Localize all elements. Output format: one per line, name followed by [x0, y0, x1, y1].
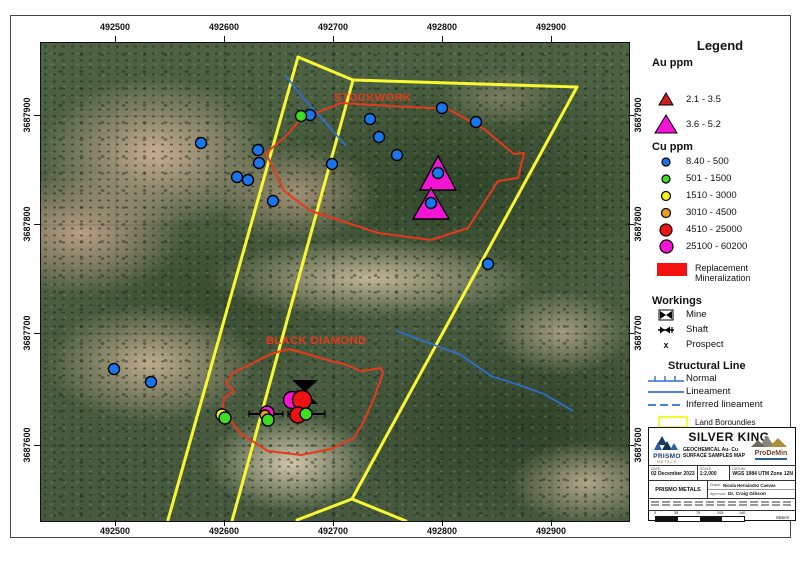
- cu-class-label: 4510 - 25000: [686, 224, 742, 235]
- cu-sample-point: [374, 132, 385, 143]
- structural-title: Structural Line: [668, 360, 794, 372]
- land-boundary-line: [297, 499, 352, 520]
- cu-sample-point: [254, 158, 265, 169]
- legend-panel: Legend Au ppm 2.1 - 3.5 3.6 - 5.2 Cu ppm…: [646, 36, 794, 430]
- scalebar-label: 140: [739, 511, 745, 515]
- cu-dot-icon: [646, 222, 686, 238]
- legend-item-mine: Mine: [646, 307, 794, 322]
- cu-sample-point: [243, 175, 254, 186]
- approved-value: Dr. Craig Gibson: [728, 492, 766, 497]
- cu-sample-point: [296, 111, 307, 122]
- replacement-label-1: Replacement: [695, 263, 748, 273]
- workings-label: Prospect: [686, 339, 724, 350]
- scalebar-label: 35: [674, 511, 678, 515]
- legend-item-cu-5: 4510 - 25000: [646, 221, 794, 238]
- cu-dot-icon: [646, 189, 686, 203]
- scalebar-segments: [655, 516, 745, 522]
- cu-sample-point: [253, 145, 264, 156]
- land-boundary-label: Land Boroundies: [695, 418, 756, 427]
- structural-label: Lineament: [686, 386, 730, 397]
- scalebar-label: 70: [696, 511, 700, 515]
- cu-sample-point: [392, 150, 403, 161]
- scalebar-label: 105: [717, 511, 723, 515]
- fine-print: [649, 499, 795, 511]
- legend-item-au-1: 2.1 - 3.5: [646, 87, 794, 111]
- cu-sample-point: [437, 103, 448, 114]
- title-block: PRISMO METALS SILVER KING GEOCHEMICAL Au…: [648, 427, 796, 521]
- prismo-logo-subtext: METALS: [651, 460, 683, 464]
- au-section-title: Au ppm: [652, 57, 794, 69]
- scalebar-units: Meters: [776, 515, 789, 520]
- zone-label: STOCKWORK: [334, 92, 412, 104]
- inferred-lineament-line-icon: [646, 401, 686, 409]
- legend-item-shaft: Shaft: [646, 322, 794, 337]
- drawn-label: Drawn:: [710, 483, 721, 487]
- cu-class-label: 501 - 1500: [686, 173, 731, 184]
- legend-item-au-2: 3.6 - 5.2: [646, 111, 794, 137]
- prismo-logo-text: PRISMO: [651, 453, 683, 460]
- cu-sample-point: [365, 114, 376, 125]
- au-class-label: 3.6 - 5.2: [686, 119, 721, 130]
- legend-item-prospect: x Prospect: [646, 337, 794, 352]
- cu-dot-icon: [646, 155, 686, 169]
- workings-label: Shaft: [686, 324, 708, 335]
- shaft-icon: [646, 325, 686, 335]
- cu-sample-point: [219, 412, 231, 424]
- au-triangle-large-icon: [646, 114, 686, 134]
- scale-bar: 0 35 70 105 140 Meters: [649, 511, 795, 522]
- land-boundary-line: [352, 499, 406, 521]
- map-overlay-svg: STOCKWORKBLACK DIAMOND: [41, 43, 629, 521]
- prodemin-logo-text: ProDeMin: [755, 450, 788, 460]
- map-canvas: STOCKWORKBLACK DIAMOND N: [40, 42, 630, 522]
- cu-sample-point: [471, 117, 482, 128]
- cu-sample-point: [109, 364, 120, 375]
- legend-item-cu-2: 501 - 1500: [646, 170, 794, 187]
- cu-dot-icon: [646, 238, 686, 255]
- replacement-label-2: Mineralization: [695, 273, 751, 283]
- prospect-x-icon: x: [646, 340, 686, 350]
- cu-sample-point: [196, 138, 207, 149]
- cu-dot-icon: [646, 206, 686, 220]
- mineralized-zone-outline: [266, 103, 524, 240]
- structural-label: Normal: [686, 373, 717, 384]
- prodemin-logo: ProDeMin: [749, 434, 793, 460]
- legend-title: Legend: [646, 38, 794, 53]
- normal-fault-line-icon: [646, 374, 686, 384]
- map-sheet: { "map": { "north_label": "N", "x_ticks"…: [0, 0, 800, 566]
- lineament-line-icon: [646, 388, 686, 396]
- cu-sample-point: [426, 198, 437, 209]
- land-boundary-line: [168, 57, 298, 520]
- cu-class-label: 1510 - 3000: [686, 190, 737, 201]
- zone-label: BLACK DIAMOND: [266, 335, 367, 347]
- legend-item-normal: Normal: [646, 372, 794, 385]
- date-value: 02 December 2023: [651, 471, 695, 477]
- structural-label: Inferred lineament: [686, 399, 763, 410]
- scalebar-label: 0: [654, 511, 656, 515]
- replacement-swatch: [657, 263, 687, 276]
- cu-class-label: 3010 - 4500: [686, 207, 737, 218]
- cu-sample-point: [300, 408, 312, 420]
- land-boundary-line: [352, 87, 577, 499]
- legend-item-replacement: Replacement Mineralization: [646, 263, 794, 289]
- cu-sample-point: [268, 196, 279, 207]
- cu-sample-point: [293, 391, 312, 410]
- cu-class-label: 25100 - 60200: [686, 241, 747, 252]
- lineament-line: [286, 76, 346, 146]
- legend-item-cu-6: 25100 - 60200: [646, 238, 794, 255]
- cu-sample-point: [146, 377, 157, 388]
- scale-value: 1:2,000: [700, 471, 728, 477]
- drawn-value: Nicola Hernández Cuevas: [723, 483, 776, 488]
- legend-item-cu-4: 3010 - 4500: [646, 204, 794, 221]
- legend-item-inferred: Inferred lineament: [646, 398, 794, 411]
- workings-title: Workings: [652, 295, 794, 307]
- cu-sample-point: [327, 159, 338, 170]
- land-boundary-line: [353, 80, 577, 87]
- legend-item-cu-3: 1510 - 3000: [646, 187, 794, 204]
- cu-dot-icon: [646, 172, 686, 186]
- cu-sample-point: [262, 414, 274, 426]
- prismo-logo-icon: [654, 435, 680, 451]
- mine-icon: [646, 309, 686, 321]
- company-name: PRISMO METALS: [649, 481, 708, 498]
- au-class-label: 2.1 - 3.5: [686, 94, 721, 105]
- approved-label: Approved:: [710, 492, 726, 496]
- cu-section-title: Cu ppm: [652, 141, 794, 153]
- legend-item-lineament: Lineament: [646, 385, 794, 398]
- au-triangle-small-icon: [646, 92, 686, 106]
- land-boundary-line: [298, 57, 353, 80]
- cu-sample-point: [433, 168, 444, 179]
- cu-class-label: 8.40 - 500: [686, 156, 729, 167]
- map-subtitle-2: SURFACE SAMPLES MAP: [683, 453, 755, 459]
- workings-label: Mine: [686, 309, 707, 320]
- cu-sample-point: [232, 172, 243, 183]
- cu-sample-point: [483, 259, 494, 270]
- prodemin-logo-icon: [751, 434, 791, 448]
- datum-value: WGS 1984 UTM Zone 12N: [732, 471, 793, 477]
- legend-item-cu-1: 8.40 - 500: [646, 153, 794, 170]
